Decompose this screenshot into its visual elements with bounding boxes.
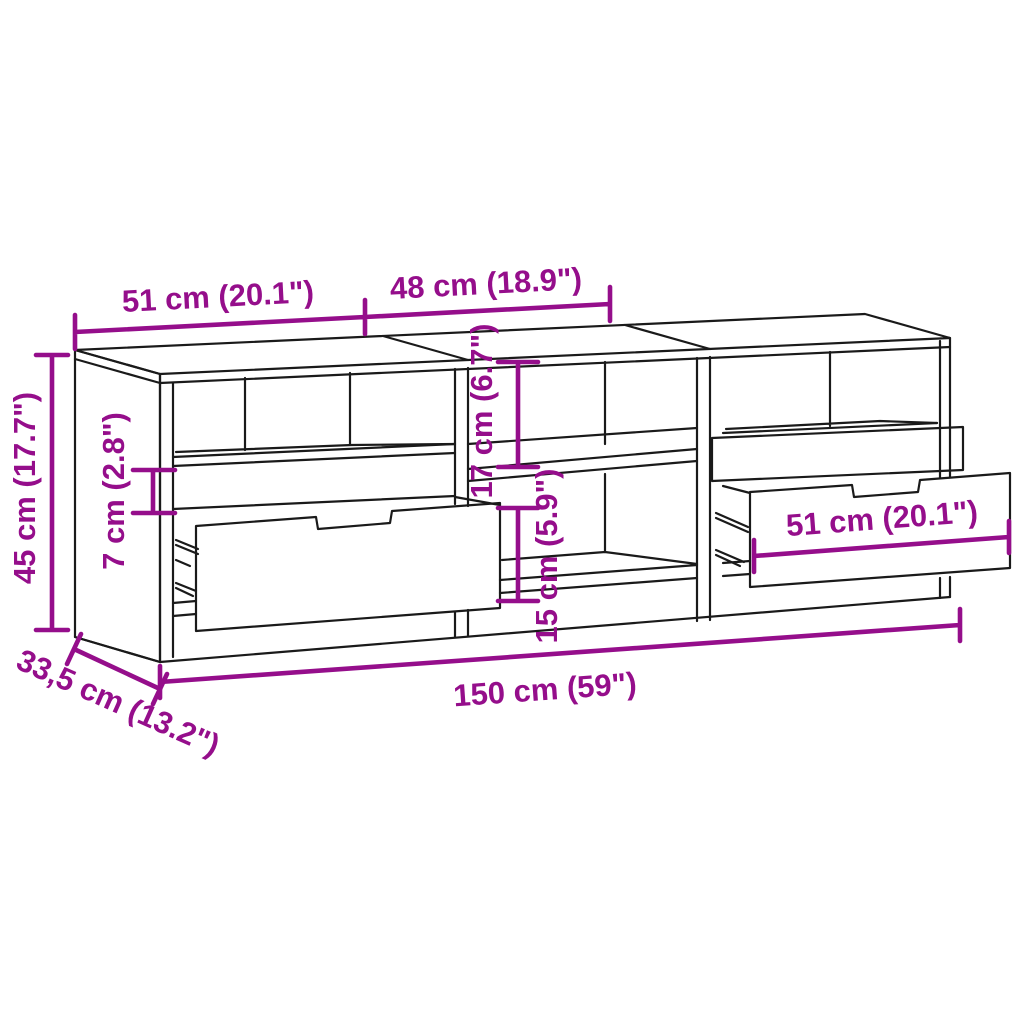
cabinet-top-module-seam-1 [383, 336, 468, 360]
dim-height-total-label: 45 cm (17.7") [7, 392, 42, 584]
dim-drawer-front-height-label: 7 cm (2.8") [96, 412, 131, 570]
right-drawer-rails [716, 513, 748, 566]
right-compartment-interior [726, 352, 937, 429]
left-compartment-interior [176, 373, 455, 452]
left-drawer-rails [176, 540, 198, 596]
dim-upper-compartment-label: 17 cm (6.7") [464, 324, 499, 499]
right-open-drawer-connector [723, 486, 750, 493]
dim-width-middle-section-label: 48 cm (18.9") [389, 261, 583, 306]
dim-drawer-front-height-line [133, 470, 175, 513]
dim-lower-compartment-label: 15 cm (5.9") [529, 469, 564, 644]
left-closed-drawer-strip [173, 453, 455, 509]
middle-shelf [468, 428, 697, 481]
diagram-canvas: 51 cm (20.1") 48 cm (18.9") 45 cm (17.7"… [0, 0, 1024, 1024]
cabinet-top-module-seam-2 [625, 325, 710, 349]
left-open-drawer-front [196, 503, 500, 631]
dimension-diagram: 51 cm (20.1") 48 cm (18.9") 45 cm (17.7"… [0, 0, 1024, 1024]
dim-drawer-width-label: 51 cm (20.1") [785, 494, 979, 543]
right-closed-drawer-strip [712, 427, 963, 481]
dim-width-total-label: 150 cm (59") [452, 666, 638, 714]
dim-width-left-section-label: 51 cm (20.1") [121, 274, 315, 319]
dim-upper-compartment-line [498, 362, 538, 467]
cabinet-top-front-thickness [160, 347, 950, 383]
left-bottom-board-sliver [173, 601, 196, 616]
